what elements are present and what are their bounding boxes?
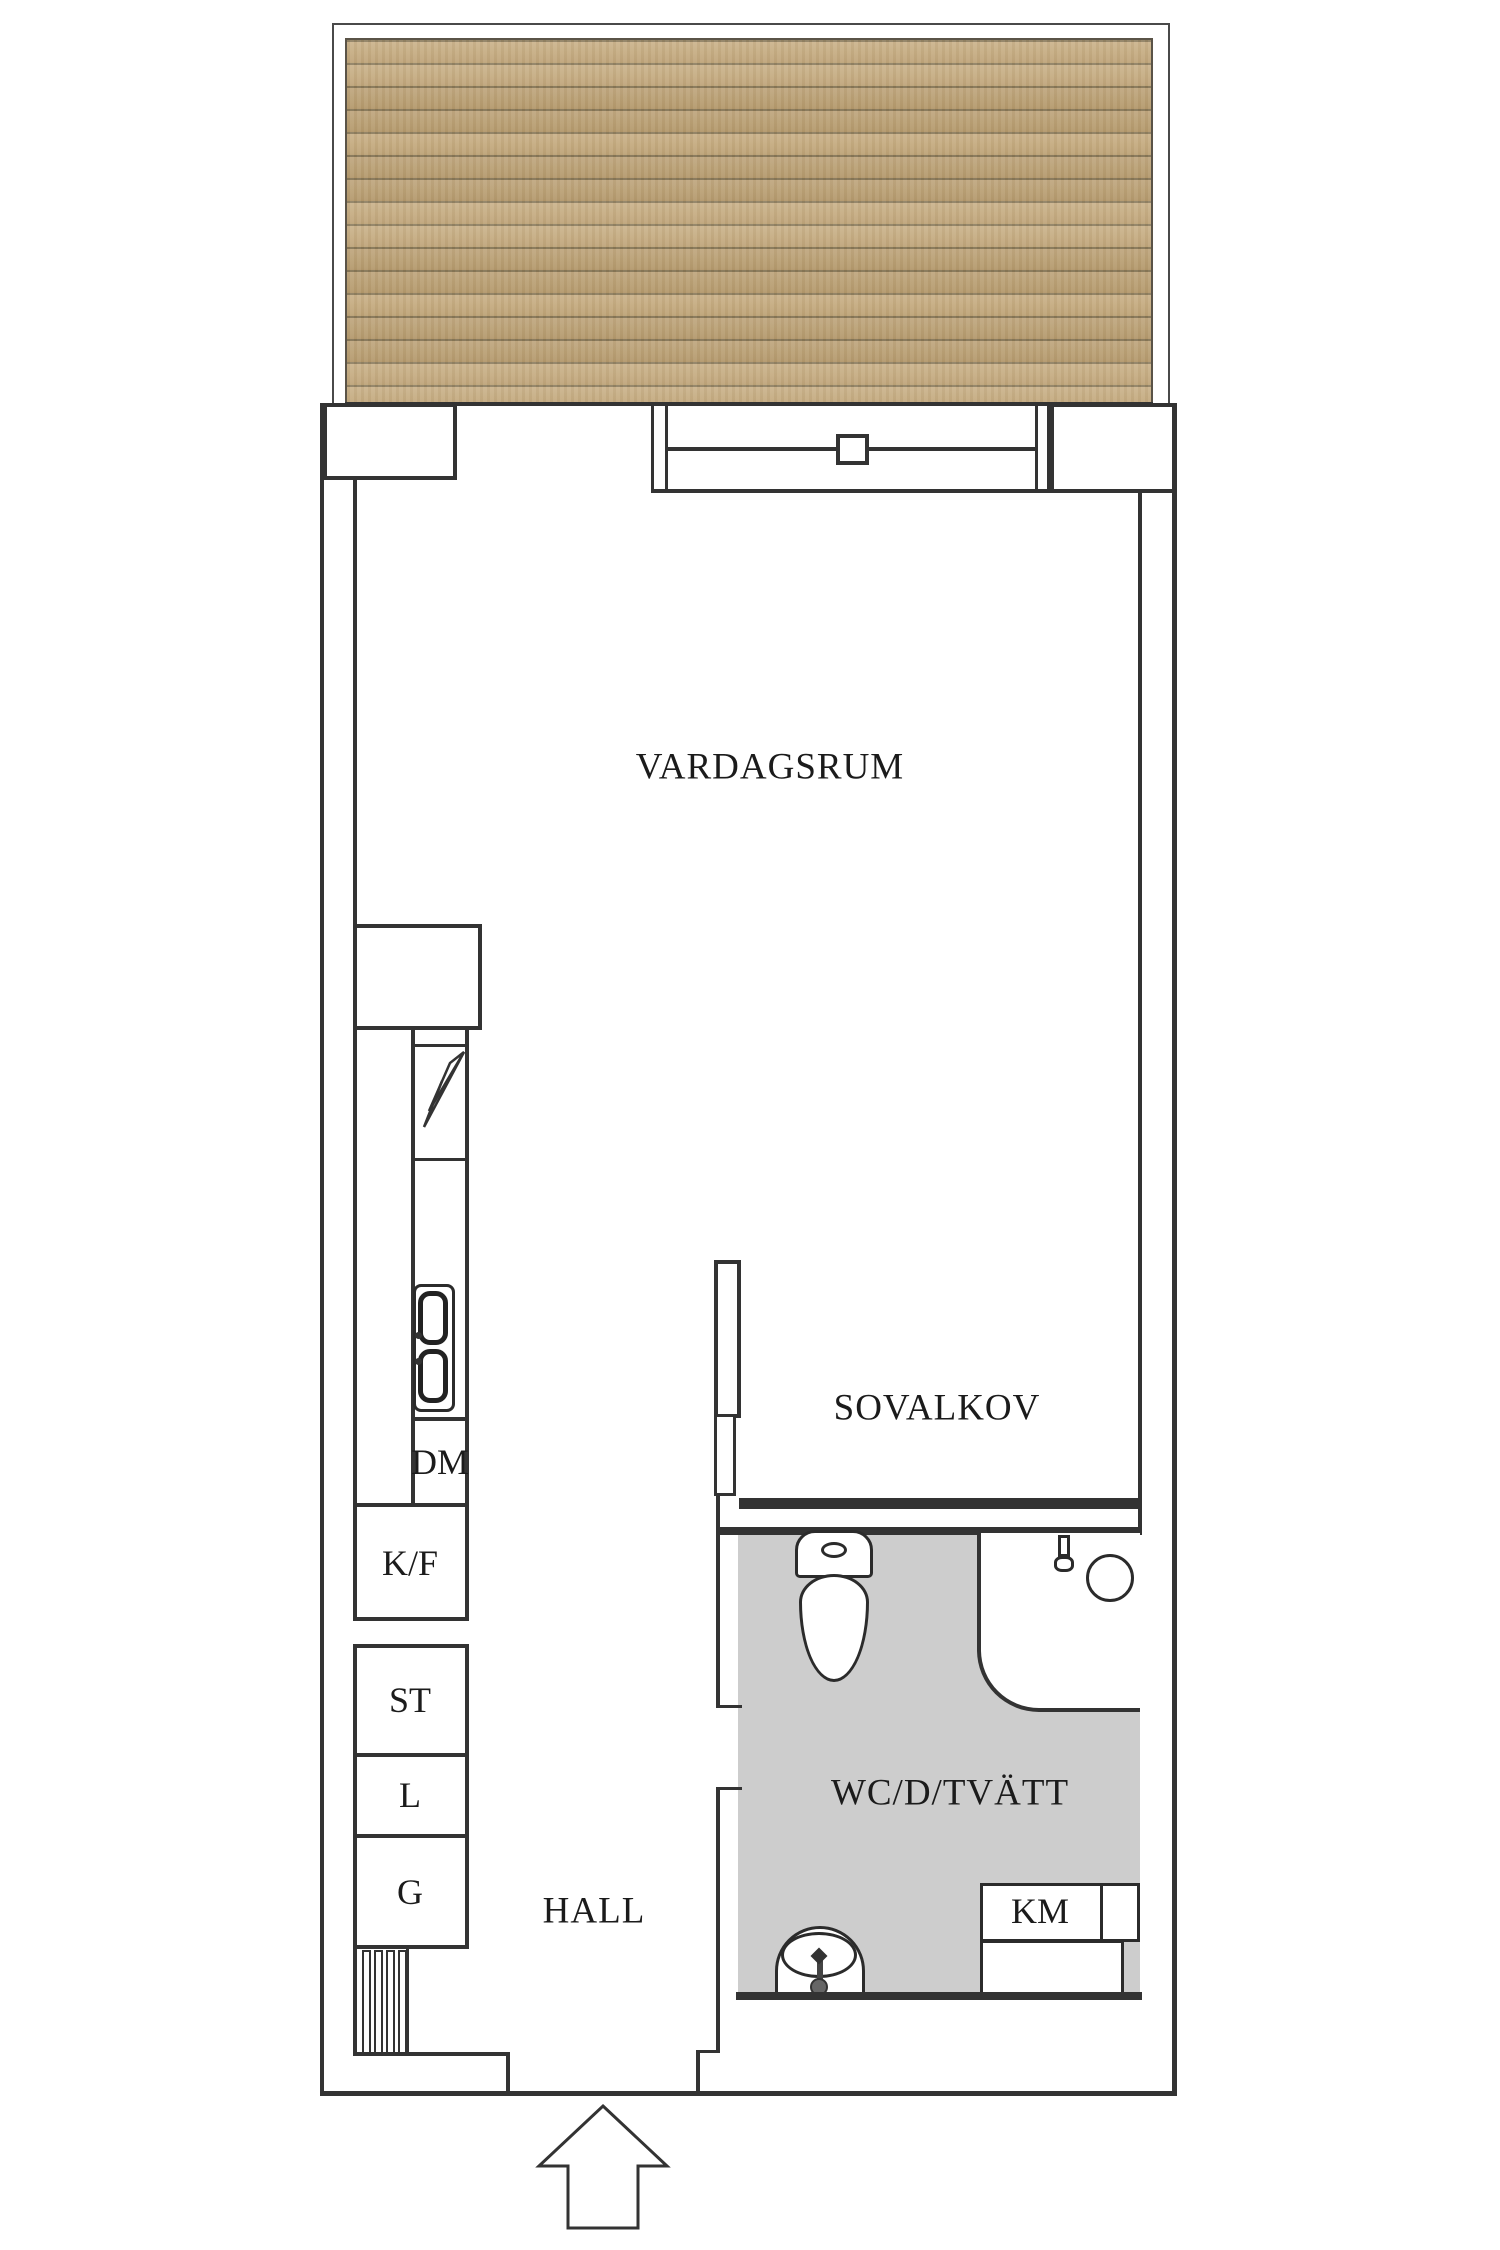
floor-plan: VARDAGSRUM SOVALKOV WC/D/TVÄTT HALL DM K… xyxy=(0,0,1500,2250)
balcony-door-frame xyxy=(1035,403,1050,493)
wall-segment xyxy=(714,1260,741,1418)
wall-segment xyxy=(736,1992,1142,2000)
appliance-label-g: G xyxy=(397,1871,423,1913)
room-label-bathroom: WC/D/TVÄTT xyxy=(831,1772,1069,1815)
wood-deck xyxy=(345,38,1153,405)
wall-segment xyxy=(716,1787,720,2053)
wall-segment xyxy=(320,2091,1177,2096)
pocket-door xyxy=(714,1414,736,1496)
room-label-hall: HALL xyxy=(543,1890,646,1933)
sink-basin-icon xyxy=(418,1349,448,1403)
wall-segment xyxy=(411,1044,469,1047)
cabinet-door-swing-icon xyxy=(413,1049,467,1157)
wall-segment xyxy=(1138,491,1142,1530)
wall-segment xyxy=(323,403,457,480)
entrance-arrow-icon xyxy=(530,2100,675,2235)
wall-segment xyxy=(506,2052,510,2091)
wall-segment xyxy=(696,2050,700,2091)
wall-segment xyxy=(353,478,357,1621)
faucet-icon xyxy=(415,1332,422,1339)
appliance-label-st: ST xyxy=(389,1679,431,1721)
wall-segment xyxy=(355,2052,510,2056)
wall-segment xyxy=(716,1494,720,1708)
faucet-icon xyxy=(415,1358,422,1365)
bathroom-sink-icon xyxy=(1086,1554,1134,1602)
wall-segment xyxy=(651,489,1050,493)
wall-segment xyxy=(1050,403,1176,493)
wall-segment xyxy=(716,1705,742,1708)
room-label-alcove: SOVALKOV xyxy=(834,1387,1041,1430)
radiator-icon xyxy=(386,1950,395,2054)
wall-segment xyxy=(406,1949,409,2056)
wall-segment xyxy=(1172,403,1177,2095)
wall-segment xyxy=(739,1498,1142,1509)
radiator-icon xyxy=(374,1950,383,2054)
sink-basin-icon xyxy=(418,1291,448,1345)
radiator-icon xyxy=(362,1950,371,2054)
laundry-bench xyxy=(980,1940,1124,1996)
laundry-cabinet xyxy=(1100,1883,1140,1942)
appliance-label-km: KM xyxy=(1011,1890,1069,1932)
faucet-icon xyxy=(1054,1556,1074,1572)
room-label-living: VARDAGSRUM xyxy=(636,746,904,789)
appliance-label-dm: DM xyxy=(411,1441,469,1483)
faucet-icon xyxy=(1058,1535,1070,1557)
wall-segment xyxy=(320,403,324,2095)
appliance-label-l: L xyxy=(399,1774,421,1816)
appliance-label-kf: K/F xyxy=(382,1542,438,1584)
wall-segment xyxy=(411,1158,469,1161)
toilet-icon xyxy=(821,1542,847,1558)
deck-edge-line xyxy=(345,402,1153,406)
door-handle-icon xyxy=(836,434,869,465)
wall-segment xyxy=(353,924,482,1030)
